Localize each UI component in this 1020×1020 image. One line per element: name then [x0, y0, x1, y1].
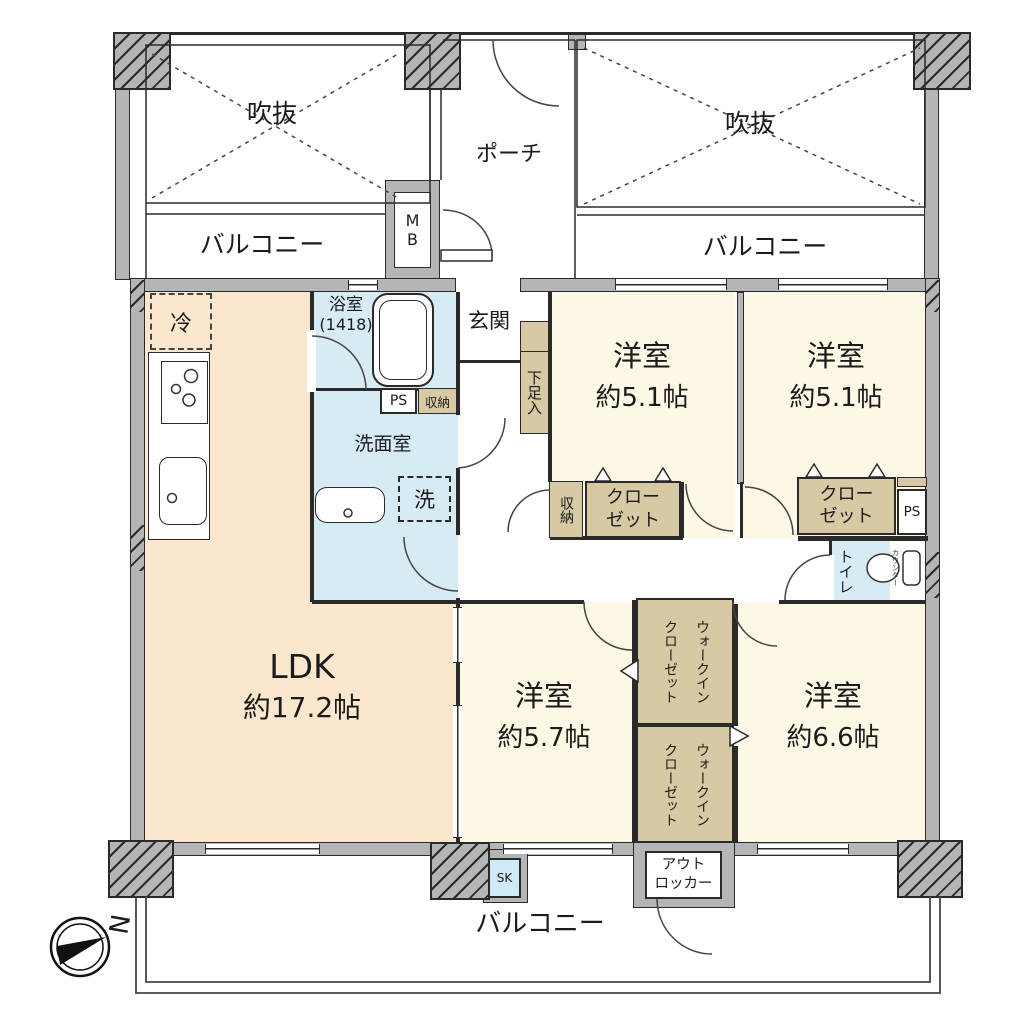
bedroom4-name-label: 洋室: [753, 673, 913, 715]
hall-storage: 収納: [418, 388, 457, 414]
balcony-bottom-label: バルコニー: [420, 903, 660, 939]
bedroom1-closet-label1: クロー: [606, 487, 660, 510]
entrance-step-line: [458, 360, 522, 363]
wall-hatch-left-mid: [131, 525, 144, 571]
compass-needle: [57, 937, 106, 965]
door-arc-bedroom1-storage: [508, 490, 550, 532]
bath-door-opening: [307, 330, 316, 392]
window-bedroom3-bottom: [503, 844, 613, 854]
ps-shaft-bath-label: PS: [390, 393, 407, 409]
bedroom2-size-label: 約5.1帖: [756, 377, 916, 413]
bedroom1-closet-label2: ゼット: [606, 510, 660, 533]
void-right-label: 吹抜: [670, 102, 830, 142]
walk-in-closet-upper: [636, 598, 734, 725]
wall-corridor-left-d: [456, 663, 460, 705]
door-arc-porch-gate: [493, 40, 559, 106]
kitchen-sink: [159, 457, 207, 525]
wic-upper-label-closet: クローゼット: [660, 604, 680, 720]
bedroom1-storage-label: 収納: [556, 496, 576, 524]
wall-bath-left-b: [310, 392, 314, 602]
pillar-bottom-right: [897, 840, 963, 898]
wall-bedroom1-bedroom2: [737, 292, 744, 484]
kitchen-stove: [161, 361, 208, 424]
entrance-door-leaf: [441, 250, 492, 261]
washroom-vanity: [315, 487, 385, 523]
building-top-line: [113, 32, 971, 35]
shoe-cabinet: 下足入: [520, 351, 549, 434]
ps-shaft-right-top: [897, 477, 927, 487]
balcony-top-left-label: バルコニー: [162, 224, 362, 262]
toilet-door-opening: [827, 555, 834, 600]
pillar-bottom-left: [108, 840, 174, 898]
slop-sink-label: SK: [497, 871, 513, 885]
bath-size-label: (1418): [306, 312, 386, 336]
entrance-door-opening: [455, 278, 521, 292]
window-ldk-bottom: [205, 844, 320, 854]
door-arc-toilet: [785, 555, 830, 600]
wall-hatch-left-top: [131, 280, 144, 312]
wic-lower-label-walkin: ウォークイン: [692, 730, 712, 840]
wall-hatch-right-top: [926, 280, 939, 312]
bathtub-inner: [379, 300, 427, 380]
door-arc-washroom: [458, 418, 505, 468]
outer-wall-right-upper: [924, 88, 939, 280]
ps-shaft-bath: PS: [380, 388, 417, 414]
washroom-label: 洗面室: [313, 425, 453, 459]
entrance-label: 玄関: [449, 302, 529, 338]
meter-box: MB: [394, 192, 431, 268]
wall-stub-porch-right: [568, 32, 586, 50]
wall-corridor-bottom-c: [779, 600, 925, 604]
toilet-counter-label: カウンター: [890, 540, 901, 596]
out-locker-label1: アウト: [662, 856, 706, 875]
washer-label: 洗: [414, 484, 435, 514]
ldk-name-label: LDK: [202, 645, 402, 687]
sliding-door-ldk-bedroom3-upper: [453, 607, 462, 663]
porch-label: ポーチ: [449, 134, 569, 170]
bedroom4-size-label: 約6.6帖: [753, 717, 913, 753]
bedroom2-closet-label1: クロー: [820, 484, 874, 507]
balcony-top-right-label: バルコニー: [665, 226, 865, 264]
toilet-label: トイレ: [834, 542, 858, 600]
window-bedroom1-top: [615, 279, 727, 290]
ps-shaft-right-label: PS: [904, 504, 921, 520]
walk-in-closet-lower: [636, 725, 734, 843]
ldk-size-label: 約17.2帖: [202, 688, 402, 724]
pillar-top-left: [113, 32, 171, 90]
bedroom1-storage: 収納: [549, 481, 583, 538]
bedroom2-closet-label2: ゼット: [820, 506, 874, 529]
outer-wall-left-upper: [115, 88, 130, 280]
wall-corridor-bottom-a: [312, 600, 584, 604]
shoe-cabinet-label: 下足入: [524, 370, 545, 415]
wall-corridor-top-b: [798, 536, 928, 541]
void-left-label: 吹抜: [192, 92, 352, 132]
out-locker: アウト ロッカー: [645, 851, 722, 899]
pillar-top-right: [913, 32, 971, 90]
bedroom2-closet: クロー ゼット: [797, 477, 896, 535]
door-arc-entrance: [443, 210, 492, 256]
bedroom3-name-label: 洋室: [464, 673, 624, 715]
bedroom3-size-label: 約5.7帖: [464, 717, 624, 753]
ps-shaft-right: PS: [897, 489, 927, 535]
hall-storage-label: 収納: [425, 392, 450, 411]
bedroom1-closet: クロー ゼット: [585, 481, 681, 538]
floor-plan: MB 冷 PS 収納 洗: [0, 0, 1020, 1020]
wall-nook-right: [740, 482, 743, 538]
wall-toilet-left-stub: [829, 541, 832, 555]
wic-upper-label-walkin: ウォークイン: [692, 604, 712, 720]
out-locker-label2: ロッカー: [655, 875, 713, 894]
window-bedroom4-bottom: [757, 844, 849, 854]
bedroom1-size-label: 約5.1帖: [562, 377, 722, 413]
pillar-bottom-mid: [430, 842, 490, 900]
fridge-space: 冷: [150, 293, 212, 350]
fridge-label: 冷: [170, 306, 192, 338]
compass-north-label: N: [97, 903, 139, 945]
bedroom2-name-label: 洋室: [756, 333, 916, 375]
window-bedroom2-top: [778, 279, 888, 290]
wic-lower-label-closet: クローゼット: [660, 730, 680, 840]
washer-space: 洗: [398, 476, 451, 522]
sliding-door-ldk-bedroom3-lower: [453, 705, 462, 838]
wall-nook-left: [681, 482, 684, 538]
wall-hatch-right-mid: [926, 552, 939, 598]
compass-inner-ring: [57, 924, 103, 970]
bedroom1-name-label: 洋室: [562, 333, 722, 375]
slop-sink: SK: [488, 858, 521, 898]
wall-corridor-left-b: [456, 468, 460, 535]
pillar-top-mid: [404, 32, 461, 90]
meter-box-label: MB: [403, 211, 422, 249]
